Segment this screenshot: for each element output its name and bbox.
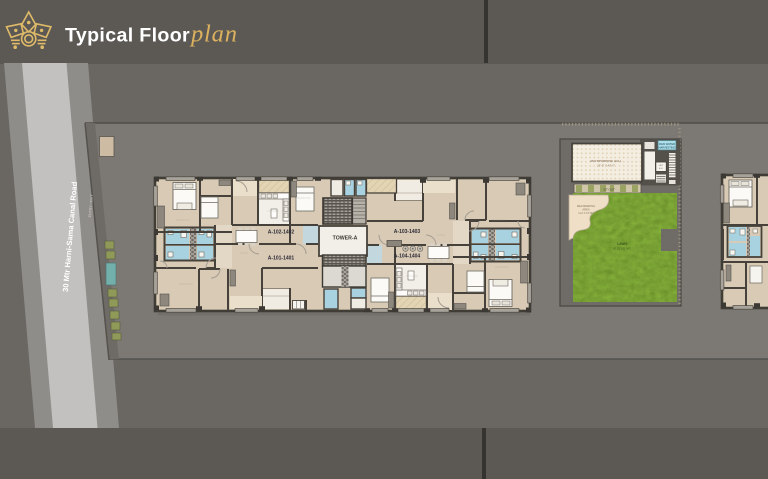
svg-text:BEDROOM: BEDROOM — [492, 218, 505, 222]
svg-text:SIT OUT: SIT OUT — [603, 188, 615, 192]
svg-text:BEDROOM: BEDROOM — [495, 265, 508, 269]
svg-text:11.0 X 9.0 MT: 11.0 X 9.0 MT — [578, 212, 594, 215]
svg-text:KITCHEN: KITCHEN — [267, 209, 279, 213]
svg-text:BEDROOM: BEDROOM — [176, 218, 189, 222]
svg-text:MEANDERING: MEANDERING — [577, 204, 595, 208]
svg-text:Typical Floor: Typical Floor — [65, 25, 190, 47]
svg-text:LIFT: LIFT — [659, 165, 664, 167]
svg-text:LIVING: LIVING — [437, 233, 446, 237]
svg-text:KITCHEN: KITCHEN — [406, 274, 418, 278]
svg-text:BEDROOM: BEDROOM — [179, 282, 192, 286]
svg-text:50.25 SQ. MT.: 50.25 SQ. MT. — [613, 247, 631, 251]
svg-text:AREA: AREA — [582, 208, 590, 212]
svg-text:BEDROOM: BEDROOM — [297, 196, 310, 200]
svg-text:TOWER-A: TOWER-A — [333, 236, 358, 242]
svg-text:6'x5': 6'x5' — [659, 168, 664, 170]
svg-text:A-101-1401: A-101-1401 — [268, 256, 295, 262]
svg-text:A-104-1404: A-104-1404 — [394, 254, 421, 260]
svg-text:HARVESTING: HARVESTING — [659, 146, 676, 150]
svg-text:A-102-1402: A-102-1402 — [268, 230, 295, 236]
svg-text:A-103-1403: A-103-1403 — [394, 229, 421, 235]
svg-text:RAIN WATER: RAIN WATER — [659, 142, 675, 146]
svg-text:25'-0" X 45'-0": 25'-0" X 45'-0" — [597, 164, 615, 168]
svg-text:MULTIPURPOSE HALL: MULTIPURPOSE HALL — [590, 159, 621, 163]
svg-text:LAWN: LAWN — [617, 242, 627, 246]
svg-text:plan: plan — [189, 21, 238, 48]
svg-text:LIVING: LIVING — [240, 251, 249, 255]
